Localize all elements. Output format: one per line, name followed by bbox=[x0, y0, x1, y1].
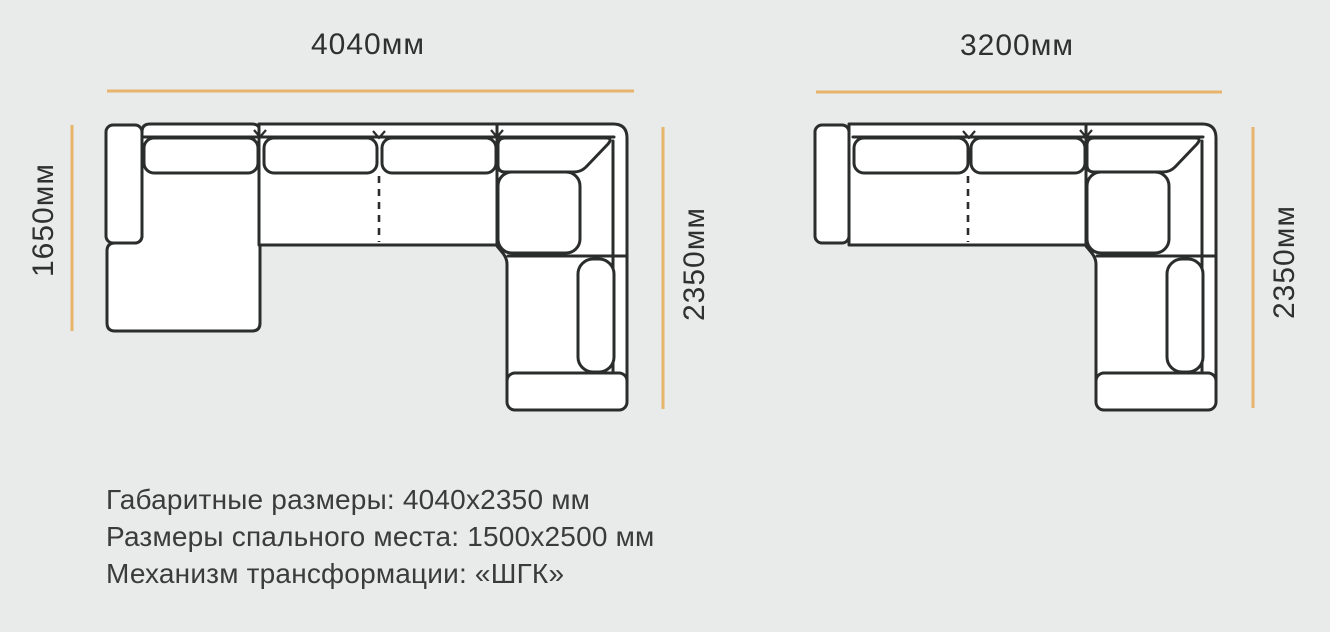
left-armrest bbox=[106, 125, 142, 243]
specifications-text: Габаритные размеры: 4040х2350 мм Размеры… bbox=[106, 481, 655, 592]
spec-overall-dimensions: Габаритные размеры: 4040х2350 мм bbox=[106, 481, 655, 518]
back-cushion bbox=[144, 138, 258, 173]
spec-mechanism: Механизм трансформации: «ШГК» bbox=[106, 555, 655, 592]
back-cushion bbox=[264, 138, 377, 173]
corner-assembly bbox=[1086, 124, 1216, 410]
sofa-dimensions-diagram: 4040мм 1650мм 2350мм 3200мм 2350мм Габар… bbox=[0, 0, 1330, 632]
left-sofa-chaise-depth-label: 1650мм bbox=[26, 120, 62, 320]
left-sofa-width-label: 4040мм bbox=[268, 27, 468, 63]
left-sofa-depth-label: 2350мм bbox=[677, 164, 713, 364]
left-armrest bbox=[815, 125, 849, 243]
corner-assembly bbox=[497, 124, 627, 410]
left-sofa-drawing bbox=[106, 124, 627, 410]
back-cushion bbox=[854, 138, 968, 173]
right-sofa-width-label: 3200мм bbox=[917, 28, 1117, 64]
back-cushion bbox=[382, 138, 496, 173]
right-sofa-depth-label: 2350мм bbox=[1267, 162, 1303, 362]
right-sofa-drawing bbox=[815, 124, 1216, 410]
spec-sleeping-area: Размеры спального места: 1500х2500 мм bbox=[106, 518, 655, 555]
back-cushion bbox=[971, 138, 1085, 173]
